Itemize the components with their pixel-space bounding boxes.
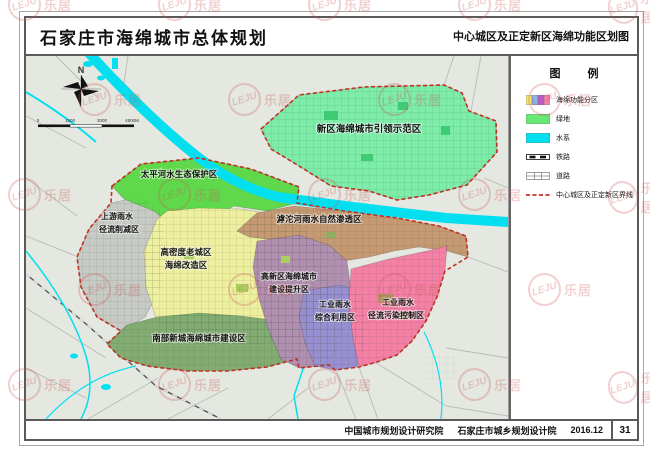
legend-item-sponge-zones: 海绵功能分区: [511, 95, 637, 105]
legend-item-green-space: 绿地: [511, 114, 637, 124]
sheet-inner-frame: 石家庄市海绵城市总体规划 中心城区及正定新区海绵功能区划图: [24, 16, 639, 441]
green-space-swatch-icon: [526, 114, 550, 124]
svg-text:1500: 1500: [65, 118, 76, 123]
boundary-symbol-icon: [526, 190, 550, 200]
content-row: 新区海绵城市引领示范区 太平河水生态保护区 上游雨水 径流削减区 高密度老城区 …: [26, 56, 637, 419]
label-gaomidu-2: 海绵改造区: [165, 260, 208, 270]
railway-symbol-icon: [526, 152, 550, 162]
page-number: 31: [611, 421, 637, 439]
legend-title: 图 例: [511, 65, 637, 81]
legend-item-water: 水系: [511, 133, 637, 143]
legend-label: 中心城区及正定新区界线: [556, 190, 633, 200]
legend-items: 海绵功能分区 绿地 水系: [511, 95, 637, 200]
footer-bar: 中国城市规划设计研究院 石家庄市城乡规划设计院 2016.12 31: [26, 419, 637, 439]
legend-label: 铁路: [556, 152, 570, 162]
legend-label: 海绵功能分区: [556, 95, 598, 105]
label-hutuohe: 滹沱河雨水自然渗透区: [276, 214, 362, 224]
label-xinqu: 新区海绵城市引领示范区: [317, 123, 422, 135]
label-wuran-2: 径流污染控制区: [368, 310, 424, 320]
label-gaomidu-1: 高密度老城区: [160, 247, 212, 257]
page: 石家庄市海绵城市总体规划 中心城区及正定新区海绵功能区划图: [0, 0, 650, 459]
label-liyong-2: 综合利用区: [315, 312, 355, 322]
footer-org1: 中国城市规划设计研究院: [344, 424, 443, 437]
legend-panel: 图 例 海绵功能分区: [509, 56, 637, 419]
legend-label: 水系: [556, 133, 570, 143]
title-bar: 石家庄市海绵城市总体规划 中心城区及正定新区海绵功能区划图: [26, 18, 637, 56]
map-canvas: 新区海绵城市引领示范区 太平河水生态保护区 上游雨水 径流削减区 高密度老城区 …: [26, 56, 509, 419]
plan-sheet: 石家庄市海绵城市总体规划 中心城区及正定新区海绵功能区划图: [19, 11, 644, 446]
village-grid: [426, 354, 458, 380]
road-symbol-icon: [526, 171, 550, 181]
label-liyong-1: 工业雨水: [319, 299, 352, 309]
label-gaoxinqu-2: 建设提升区: [268, 284, 309, 294]
legend-label: 绿地: [556, 114, 570, 124]
water-swatch-icon: [526, 133, 550, 143]
label-wuran-1: 工业雨水: [382, 297, 415, 307]
compass-north-label: N: [78, 65, 85, 75]
legend-item-road: 道路: [511, 171, 637, 181]
footer-org2: 石家庄市城乡规划设计院: [457, 424, 556, 437]
planning-map-svg: 新区海绵城市引领示范区 太平河水生态保护区 上游雨水 径流削减区 高密度老城区 …: [26, 56, 508, 419]
label-taipinghe: 太平河水生态保护区: [140, 169, 218, 179]
svg-text:4500M: 4500M: [125, 118, 139, 123]
map-subtitle: 中心城区及正定新区海绵功能区划图: [453, 28, 637, 44]
label-nanbu: 南部新城海绵城市建设区: [152, 333, 246, 343]
legend-item-boundary: 中心城区及正定新区界线: [511, 190, 637, 200]
legend-item-railway: 铁路: [511, 152, 637, 162]
label-shangyou-1: 上游雨水: [101, 211, 134, 221]
sponge-zones-swatch-icon: [526, 95, 550, 105]
footer-date: 2016.12: [570, 425, 603, 435]
svg-text:3000: 3000: [97, 118, 108, 123]
label-shangyou-2: 径流削减区: [99, 224, 139, 234]
legend-label: 道路: [556, 171, 570, 181]
label-gaoxinqu-1: 高新区海绵城市: [261, 271, 317, 281]
page-title: 石家庄市海绵城市总体规划: [26, 24, 268, 49]
